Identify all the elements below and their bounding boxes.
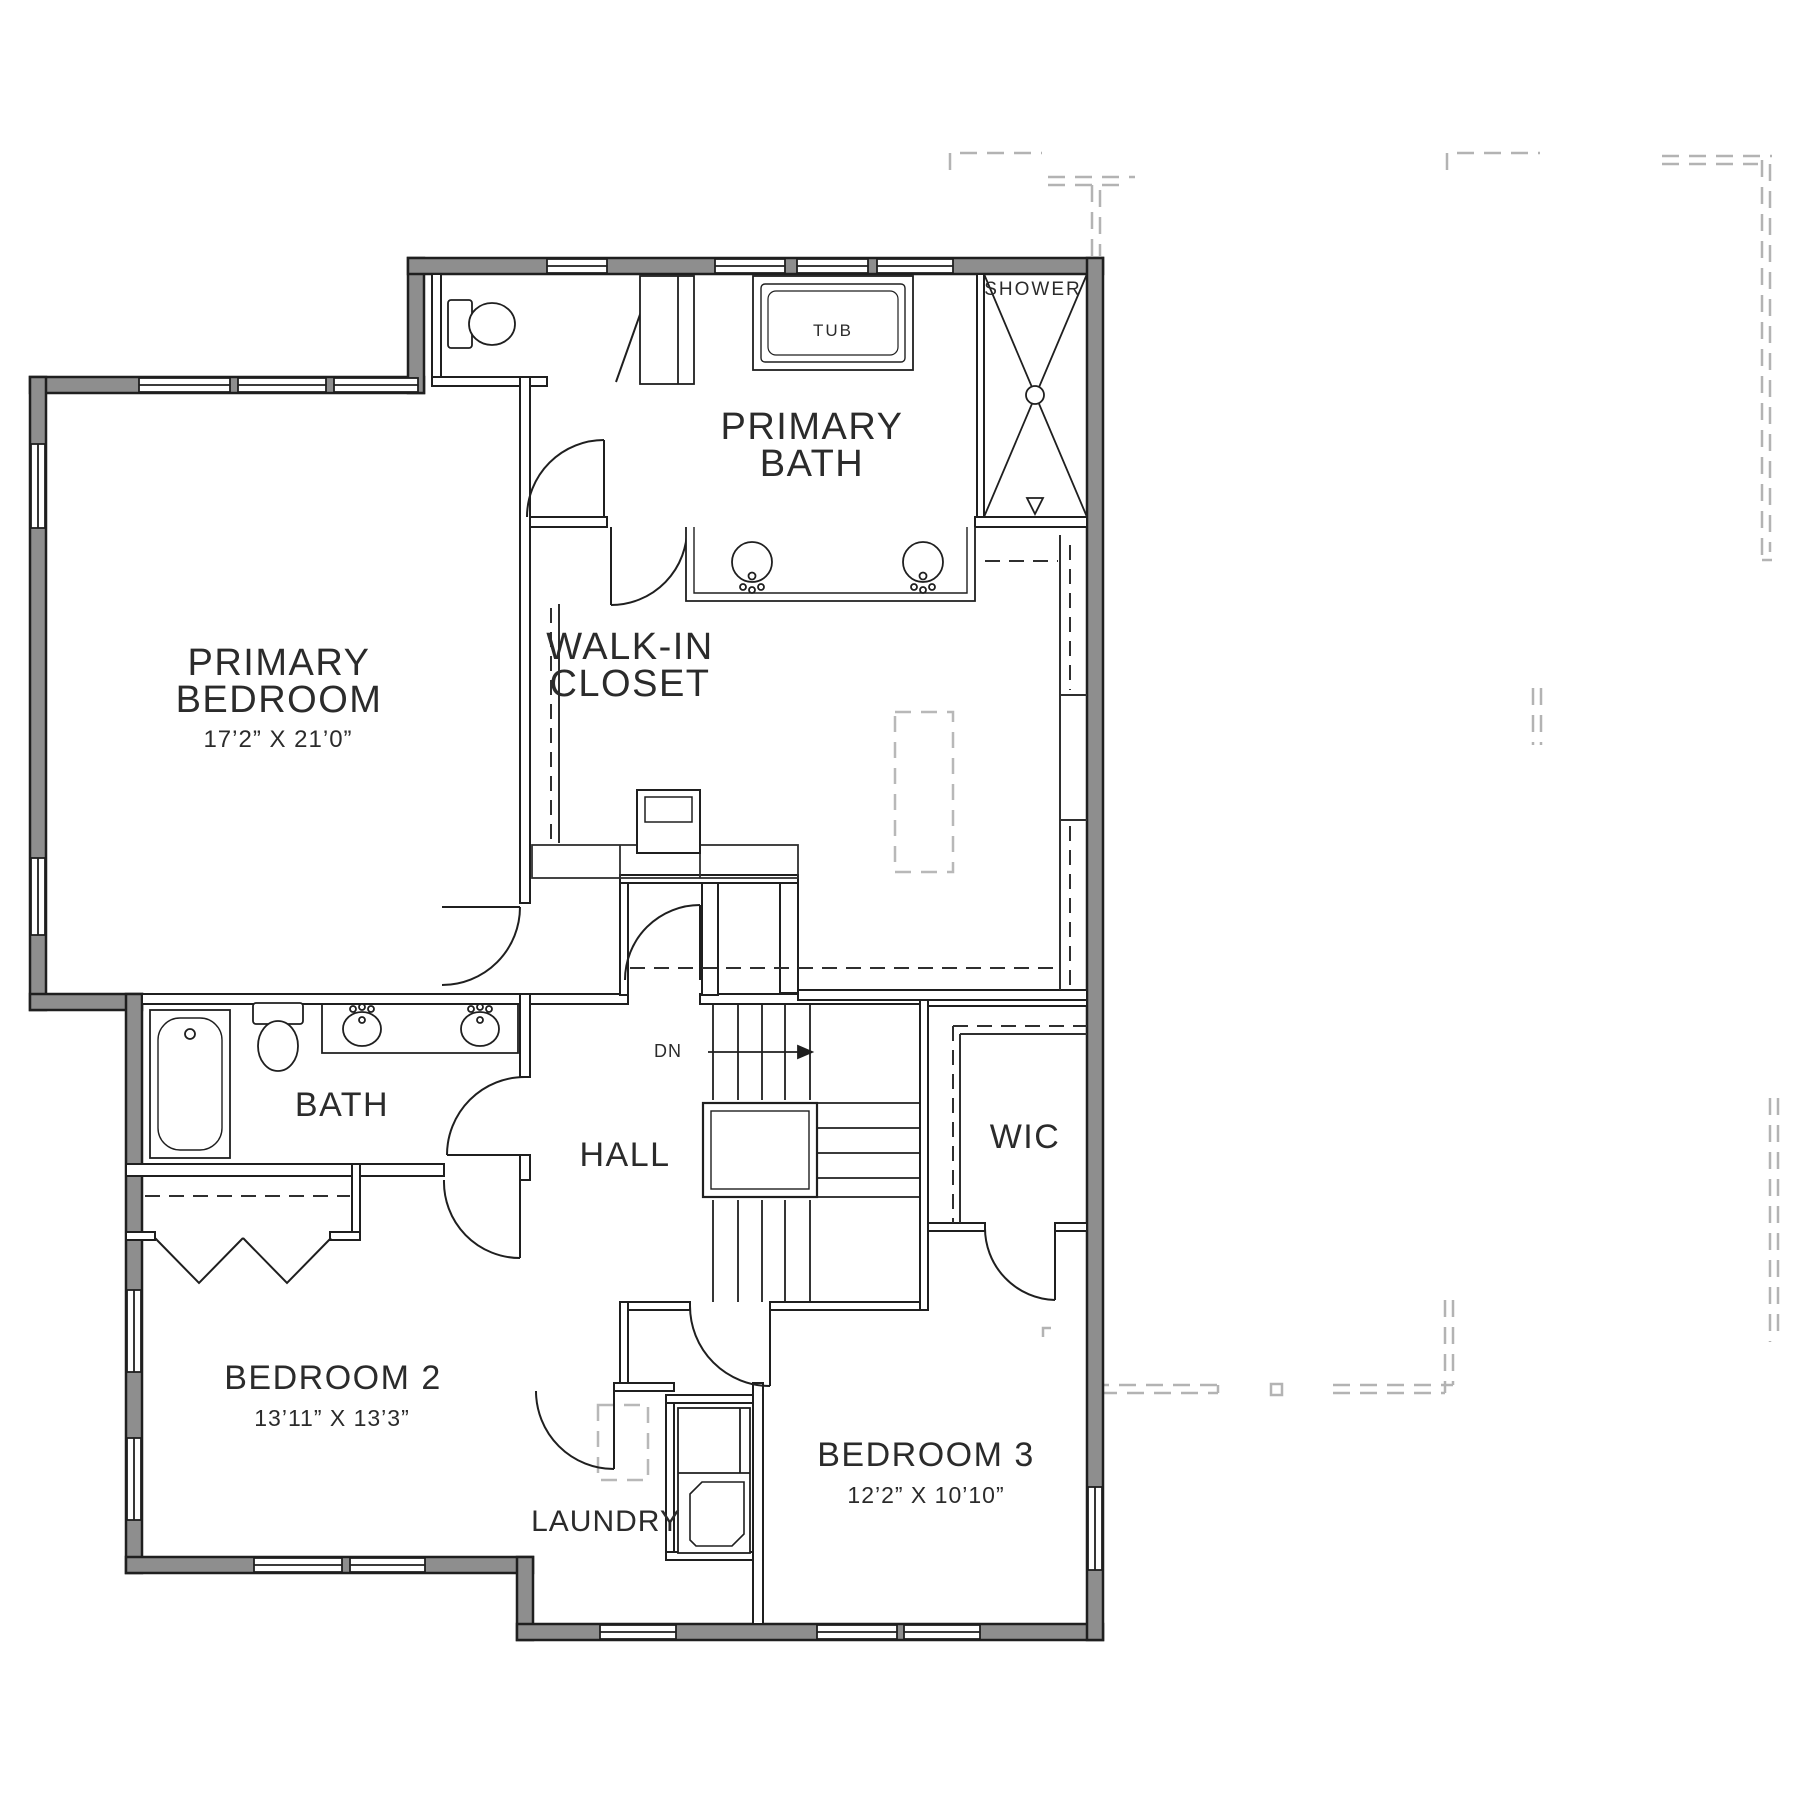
washer-dryer xyxy=(678,1408,750,1553)
primary-bedroom-label: PRIMARY BEDROOM xyxy=(176,645,383,719)
vanity-hall-bath xyxy=(322,1004,518,1053)
wic-label: WIC xyxy=(990,1119,1061,1155)
stairs-down-arrow xyxy=(708,1046,812,1058)
shower-label: SHOWER xyxy=(984,281,1082,299)
laundry-label: LAUNDRY xyxy=(531,1506,681,1538)
linen-cabinet xyxy=(640,276,694,384)
floor-plan-drawing xyxy=(0,0,1800,1800)
staircase xyxy=(703,1004,920,1302)
tub-label: TUB xyxy=(813,322,853,340)
vanity-primary xyxy=(686,527,975,601)
primary-bath-label: PRIMARY BATH xyxy=(721,409,904,483)
floor-plan-page: PRIMARY BEDROOM 17’2” X 21’0” PRIMARY BA… xyxy=(0,0,1800,1800)
bedroom-2-dimensions: 13’11” X 13’3” xyxy=(254,1405,410,1431)
roof-outline-dashed-lines xyxy=(950,153,1778,1395)
windows xyxy=(31,259,1102,1639)
bedroom-3-dimensions: 12’2” X 10’10” xyxy=(847,1482,1004,1508)
primary-bedroom-dimensions: 17’2” X 21’0” xyxy=(203,727,352,753)
walk-in-closet-label: WALK-IN CLOSET xyxy=(546,629,713,703)
toilet-hall-bath xyxy=(253,1003,303,1071)
bath-label: BATH xyxy=(295,1087,389,1123)
stairs-dn-label: DN xyxy=(654,1042,682,1060)
tub-hall-bath xyxy=(150,1010,230,1158)
hall-label: HALL xyxy=(579,1137,670,1173)
bedroom-3-label: BEDROOM 3 xyxy=(817,1437,1035,1473)
toilet-primary xyxy=(448,300,515,348)
exterior-walls xyxy=(30,258,1103,1640)
shower-pan xyxy=(984,274,1087,517)
chase-box xyxy=(637,790,700,853)
bedroom-2-label: BEDROOM 2 xyxy=(224,1360,442,1396)
